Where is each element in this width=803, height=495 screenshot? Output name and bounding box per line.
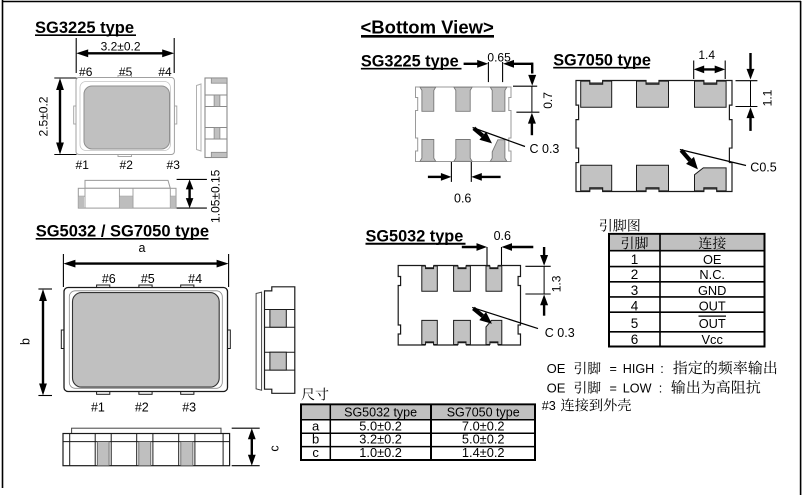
svg-text::: : <box>659 382 663 396</box>
svg-text::: : <box>660 362 664 376</box>
svg-text:SG3225 type: SG3225 type <box>35 19 134 37</box>
svg-text:#2: #2 <box>135 401 149 415</box>
svg-text:SG5032 type: SG5032 type <box>366 227 464 245</box>
svg-text:SG7050 type: SG7050 type <box>447 405 520 419</box>
svg-text:#2: #2 <box>120 158 134 172</box>
svg-text:3.2±0.2: 3.2±0.2 <box>101 39 141 53</box>
svg-text:SG5032 / SG7050 type: SG5032 / SG7050 type <box>36 223 209 241</box>
svg-text:#1: #1 <box>76 158 90 172</box>
svg-text:6: 6 <box>631 332 639 347</box>
svg-text:0.7: 0.7 <box>541 92 555 109</box>
svg-text:#4: #4 <box>158 65 172 79</box>
svg-text:1.4±0.2: 1.4±0.2 <box>462 445 505 460</box>
svg-text:#4: #4 <box>188 272 202 286</box>
svg-text:SG5032 type: SG5032 type <box>344 405 417 419</box>
svg-text:#6: #6 <box>79 65 93 79</box>
svg-text:SG3225 type: SG3225 type <box>361 52 459 70</box>
svg-text:1.3: 1.3 <box>550 275 564 292</box>
svg-text:4: 4 <box>631 298 639 313</box>
svg-text:OE: OE <box>547 361 566 376</box>
svg-text:#3: #3 <box>182 401 196 415</box>
svg-text:0.6: 0.6 <box>494 229 511 243</box>
svg-text:OE: OE <box>547 381 566 396</box>
svg-text:#1: #1 <box>91 401 105 415</box>
svg-text:#3: #3 <box>167 158 181 172</box>
svg-text:c: c <box>268 445 282 451</box>
svg-text:OE: OE <box>703 252 722 267</box>
svg-text:LOW: LOW <box>623 382 652 396</box>
svg-text:#6: #6 <box>102 272 116 286</box>
svg-text:C0.5: C0.5 <box>750 161 776 175</box>
svg-text:a: a <box>139 241 146 255</box>
svg-text:2.5±0.2: 2.5±0.2 <box>37 96 51 136</box>
svg-text:1.4: 1.4 <box>698 48 715 62</box>
svg-text:3: 3 <box>631 283 639 298</box>
svg-text:5: 5 <box>631 316 639 331</box>
svg-text:GND: GND <box>698 283 726 298</box>
svg-text:OUT: OUT <box>699 316 726 331</box>
svg-text:1.0±0.2: 1.0±0.2 <box>359 445 402 460</box>
svg-text:2: 2 <box>631 267 639 282</box>
svg-text:<Bottom View>: <Bottom View> <box>361 17 494 38</box>
svg-text:0.6: 0.6 <box>454 191 471 205</box>
svg-text:HIGH: HIGH <box>623 362 654 376</box>
svg-text:OUT: OUT <box>699 298 726 313</box>
svg-text:#5: #5 <box>141 272 155 286</box>
svg-text:Vcc: Vcc <box>702 332 724 347</box>
svg-text:1.05±0.15: 1.05±0.15 <box>209 169 223 223</box>
svg-text:C 0.3: C 0.3 <box>530 142 560 156</box>
svg-text:=: = <box>610 362 617 376</box>
svg-text:1: 1 <box>631 252 639 267</box>
svg-text:=: = <box>610 382 617 396</box>
svg-text:1.1: 1.1 <box>761 89 775 106</box>
svg-text:N.C.: N.C. <box>699 267 725 282</box>
svg-text:c: c <box>312 445 319 460</box>
svg-text:C 0.3: C 0.3 <box>545 326 575 340</box>
svg-text:#3: #3 <box>542 399 556 413</box>
svg-text:b: b <box>19 338 33 345</box>
